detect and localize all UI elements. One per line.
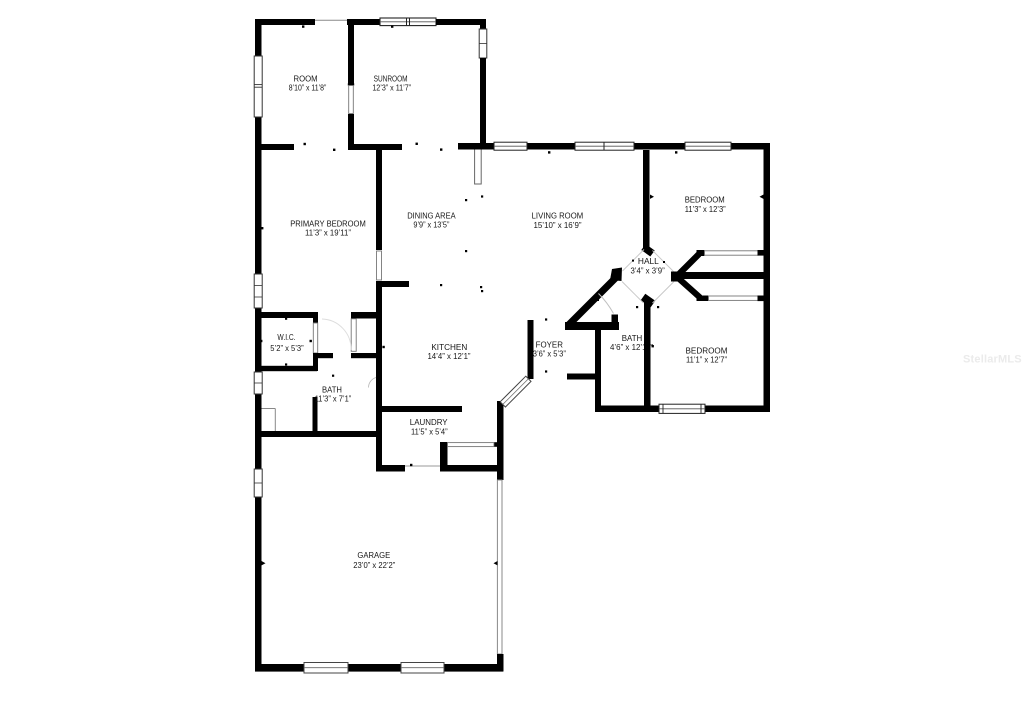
- svg-text:8’10” x 11’8”: 8’10” x 11’8”: [289, 83, 327, 93]
- svg-text:5’2” x 5’3”: 5’2” x 5’3”: [270, 343, 304, 353]
- svg-text:W.I.C.: W.I.C.: [277, 332, 295, 342]
- svg-text:14’4” x 12’1”: 14’4” x 12’1”: [427, 351, 470, 361]
- svg-text:3’6” x 5’3”: 3’6” x 5’3”: [533, 349, 566, 359]
- svg-text:12’3” x 11’7”: 12’3” x 11’7”: [372, 83, 411, 93]
- svg-text:3’4” x 3’9”: 3’4” x 3’9”: [630, 266, 665, 276]
- svg-text:11’1” x 12’7”: 11’1” x 12’7”: [686, 354, 727, 364]
- svg-text:11’3” x 7’1”: 11’3” x 7’1”: [315, 393, 352, 403]
- svg-text:11’5” x 5’4”: 11’5” x 5’4”: [411, 426, 448, 436]
- svg-text:11’3” x 12’3”: 11’3” x 12’3”: [685, 204, 726, 214]
- svg-text:StellarMLS: StellarMLS: [963, 354, 1022, 366]
- svg-text:15’10” x 16’9”: 15’10” x 16’9”: [534, 220, 582, 230]
- svg-text:9’9” x 13’5”: 9’9” x 13’5”: [413, 220, 449, 230]
- svg-text:11’3” x 19’11”: 11’3” x 19’11”: [305, 227, 351, 237]
- svg-text:GARAGE: GARAGE: [357, 550, 390, 560]
- svg-text:23’0” x 22’2”: 23’0” x 22’2”: [353, 560, 395, 570]
